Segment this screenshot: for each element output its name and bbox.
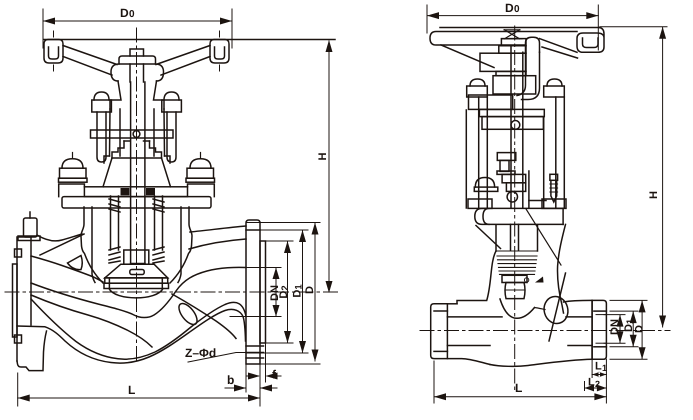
svg-text:b: b <box>227 373 234 387</box>
svg-text:D: D <box>120 6 129 20</box>
svg-text:D2: D2 <box>278 285 291 298</box>
svg-text:L: L <box>128 383 135 397</box>
svg-text:D: D <box>304 286 316 294</box>
svg-text:D: D <box>634 325 646 333</box>
svg-text:L: L <box>515 381 522 395</box>
svg-text:H: H <box>648 191 660 199</box>
svg-text:L: L <box>595 361 602 373</box>
svg-text:0: 0 <box>514 4 520 15</box>
svg-text:D: D <box>505 1 514 15</box>
svg-text:2: 2 <box>595 379 600 389</box>
svg-text:DN: DN <box>609 319 621 335</box>
svg-text:D1: D1 <box>292 284 305 298</box>
svg-text:H: H <box>317 152 329 160</box>
svg-text:L: L <box>588 377 595 389</box>
svg-text:1: 1 <box>602 363 607 373</box>
svg-text:Z–Φd: Z–Φd <box>185 346 216 360</box>
svg-text:0: 0 <box>129 9 135 20</box>
